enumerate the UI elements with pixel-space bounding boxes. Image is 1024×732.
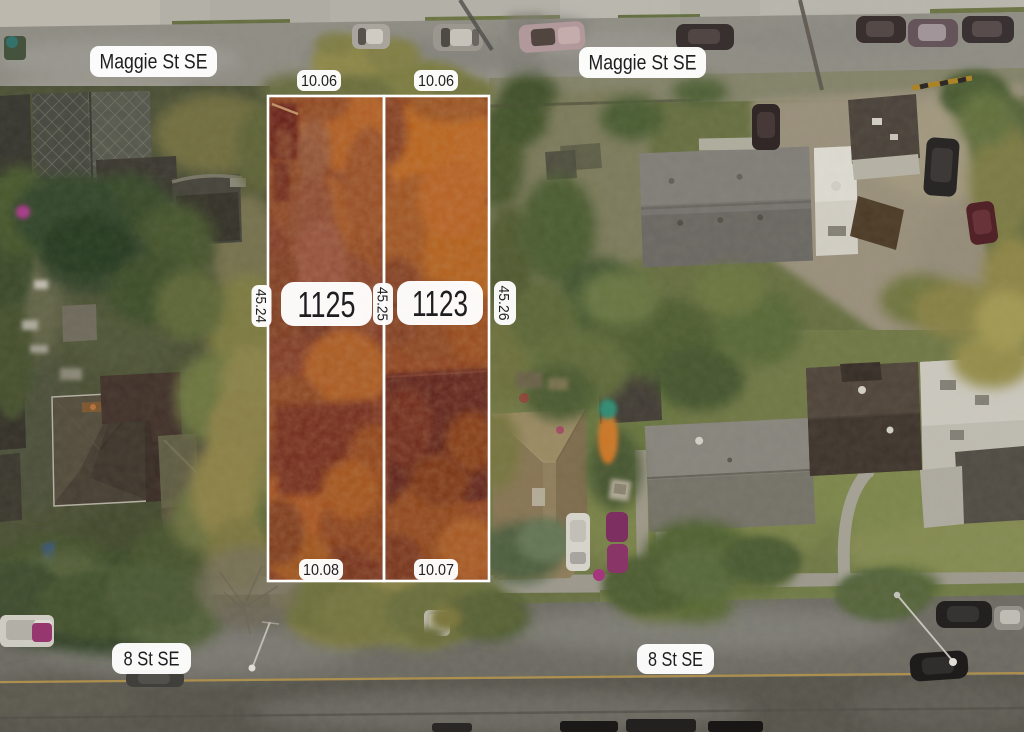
- svg-text:Maggie St SE: Maggie St SE: [100, 51, 208, 74]
- svg-text:Maggie St SE: Maggie St SE: [589, 52, 697, 75]
- svg-text:45.25: 45.25: [374, 287, 391, 321]
- svg-text:1123: 1123: [412, 283, 468, 324]
- svg-text:1125: 1125: [298, 284, 356, 325]
- svg-text:45.24: 45.24: [252, 289, 269, 323]
- svg-text:8 St SE: 8 St SE: [648, 649, 703, 671]
- svg-text:10.07: 10.07: [418, 562, 454, 579]
- svg-text:8 St SE: 8 St SE: [124, 649, 180, 671]
- svg-text:10.06: 10.06: [301, 73, 337, 90]
- svg-text:10.08: 10.08: [303, 562, 339, 579]
- svg-text:45.26: 45.26: [495, 286, 512, 321]
- svg-text:10.06: 10.06: [418, 73, 454, 90]
